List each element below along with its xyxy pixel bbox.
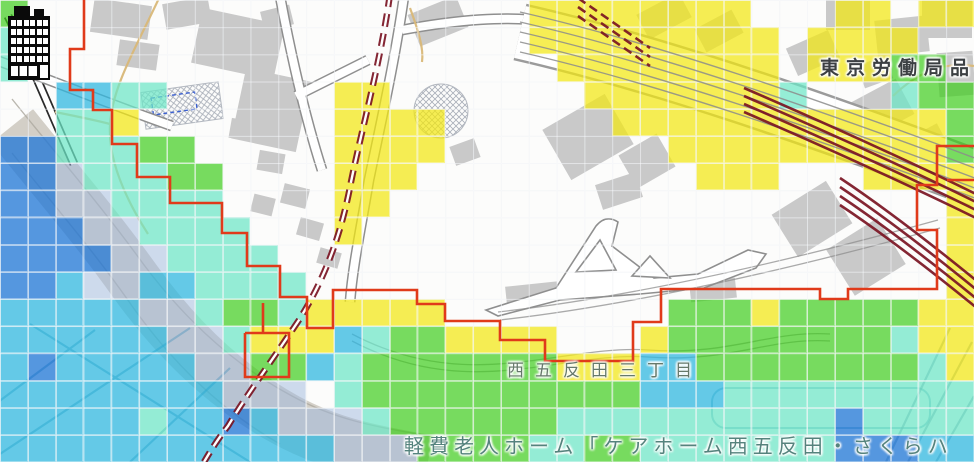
flood-cell [28, 353, 56, 380]
flood-cell [529, 27, 557, 54]
flood-cell [56, 326, 84, 353]
flood-cell [83, 245, 111, 272]
flood-cell [334, 82, 362, 109]
flood-cell [779, 136, 807, 163]
flood-cell [696, 54, 724, 81]
flood-cell [83, 217, 111, 244]
flood-cell [473, 353, 501, 380]
flood-cell [445, 326, 473, 353]
flood-cell [362, 109, 390, 136]
flood-cell [751, 109, 779, 136]
flood-cell [195, 272, 223, 299]
flood-cell [473, 326, 501, 353]
flood-cell [724, 82, 752, 109]
flood-cell [139, 163, 167, 190]
flood-cell [863, 27, 891, 54]
flood-cell [195, 217, 223, 244]
flood-cell [111, 217, 139, 244]
flood-cell [946, 0, 974, 27]
flood-cell [334, 217, 362, 244]
flood-cell [751, 299, 779, 326]
flood-cell [390, 326, 418, 353]
flood-cell [724, 381, 752, 408]
flood-cell [612, 0, 640, 27]
flood-cell [111, 109, 139, 136]
flood-cell [417, 109, 445, 136]
flood-cell [139, 272, 167, 299]
flood-cell [918, 163, 946, 190]
flood-cell [56, 82, 84, 109]
flood-cell [417, 353, 445, 380]
flood-cell [696, 82, 724, 109]
flood-cell [612, 27, 640, 54]
flood-cell [250, 245, 278, 272]
flood-cell [223, 326, 251, 353]
flood-cell [250, 299, 278, 326]
flood-cell [167, 353, 195, 380]
flood-cell [390, 381, 418, 408]
flood-cell [668, 27, 696, 54]
flood-cell [835, 353, 863, 380]
flood-cell [918, 82, 946, 109]
flood-cell [390, 299, 418, 326]
flood-cell [56, 353, 84, 380]
flood-cell [223, 381, 251, 408]
flood-cell [362, 326, 390, 353]
flood-cell [111, 408, 139, 435]
flood-cell [863, 163, 891, 190]
flood-cell [807, 353, 835, 380]
flood-cell [946, 245, 974, 272]
flood-cell [612, 82, 640, 109]
flood-cell [891, 163, 919, 190]
flood-cell [696, 0, 724, 27]
map-canvas[interactable]: 東京労働局品 西五反田三丁目 軽費老人ホーム「ケアホーム西五反田・さくらハ [0, 0, 974, 462]
flood-cell [891, 27, 919, 54]
flood-cell [278, 353, 306, 380]
flood-cell [278, 435, 306, 462]
flood-cell [918, 326, 946, 353]
flood-cell [946, 299, 974, 326]
flood-cell [83, 272, 111, 299]
flood-cell [696, 27, 724, 54]
flood-cell [111, 82, 139, 109]
flood-cell [306, 408, 334, 435]
flood-cell [0, 381, 28, 408]
flood-cell [779, 299, 807, 326]
flood-cell [56, 109, 84, 136]
flood-cell [83, 381, 111, 408]
flood-cell [751, 54, 779, 81]
flood-cell [0, 217, 28, 244]
flood-cell [56, 136, 84, 163]
flood-cell [0, 408, 28, 435]
flood-cell [111, 136, 139, 163]
flood-cell [891, 109, 919, 136]
flood-cell [111, 299, 139, 326]
flood-cell [278, 408, 306, 435]
flood-cell [612, 109, 640, 136]
flood-cell [696, 109, 724, 136]
flood-cell [557, 381, 585, 408]
flood-cell [946, 353, 974, 380]
flood-cell [56, 217, 84, 244]
flood-cell [668, 381, 696, 408]
flood-cell [390, 109, 418, 136]
flood-cell [835, 136, 863, 163]
flood-cell [557, 54, 585, 81]
flood-cell [250, 381, 278, 408]
flood-cell [779, 109, 807, 136]
flood-cell [640, 27, 668, 54]
flood-cell [362, 381, 390, 408]
flood-cell [195, 326, 223, 353]
flood-cell [779, 353, 807, 380]
flood-cell [139, 82, 167, 109]
flood-cell [56, 299, 84, 326]
flood-cell [139, 245, 167, 272]
flood-cell [807, 136, 835, 163]
flood-cell [111, 272, 139, 299]
flood-cell [0, 272, 28, 299]
flood-cell [445, 353, 473, 380]
flood-cell [28, 299, 56, 326]
flood-cell [668, 54, 696, 81]
flood-cell [334, 190, 362, 217]
flood-cell [362, 136, 390, 163]
flood-cell [362, 353, 390, 380]
flood-cell [83, 299, 111, 326]
flood-cell [56, 408, 84, 435]
flood-cell [83, 435, 111, 462]
flood-cell [167, 272, 195, 299]
flood-cell [111, 353, 139, 380]
flood-cell [724, 326, 752, 353]
flood-cell [668, 326, 696, 353]
flood-cell [668, 136, 696, 163]
flood-cell [167, 217, 195, 244]
flood-cell [139, 408, 167, 435]
flood-cell [334, 435, 362, 462]
flood-cell [139, 381, 167, 408]
flood-cell [223, 217, 251, 244]
flood-cell [28, 163, 56, 190]
flood-cell [445, 381, 473, 408]
flood-cell [724, 109, 752, 136]
flood-cell [807, 299, 835, 326]
flood-cell [28, 408, 56, 435]
flood-cell [0, 435, 28, 462]
flood-cell [306, 299, 334, 326]
flood-cell [473, 381, 501, 408]
flood-cell [167, 381, 195, 408]
flood-cell [946, 217, 974, 244]
flood-cell [139, 299, 167, 326]
flood-cell [111, 435, 139, 462]
flood-cell [223, 353, 251, 380]
flood-cell [946, 326, 974, 353]
flood-cell [696, 136, 724, 163]
flood-cell [696, 163, 724, 190]
flood-cell [167, 163, 195, 190]
flood-cell [56, 190, 84, 217]
flood-cell [751, 326, 779, 353]
label-tokyo-labor-bureau: 東京労働局品 [820, 53, 974, 80]
flood-cell [501, 326, 529, 353]
flood-cell [891, 299, 919, 326]
flood-cell [668, 0, 696, 27]
flood-cell [946, 190, 974, 217]
flood-cell [863, 353, 891, 380]
flood-cell [807, 326, 835, 353]
flood-cell [0, 245, 28, 272]
flood-cell [891, 136, 919, 163]
flood-cell [139, 136, 167, 163]
flood-cell [83, 82, 111, 109]
flood-cell [334, 163, 362, 190]
flood-cell [28, 326, 56, 353]
flood-cell [918, 109, 946, 136]
flood-cell [390, 353, 418, 380]
flood-cell [918, 299, 946, 326]
flood-cell [696, 381, 724, 408]
flood-cell [111, 245, 139, 272]
flood-cell [724, 27, 752, 54]
flood-cell [362, 190, 390, 217]
flood-cell [863, 136, 891, 163]
flood-cell [334, 353, 362, 380]
flood-cell [83, 326, 111, 353]
flood-cell [362, 408, 390, 435]
flood-cell [835, 27, 863, 54]
flood-cell [584, 82, 612, 109]
flood-cell [807, 381, 835, 408]
flood-cell [223, 299, 251, 326]
flood-cell [918, 353, 946, 380]
flood-cell [139, 217, 167, 244]
flood-cell [863, 326, 891, 353]
flood-cell [390, 136, 418, 163]
flood-cell [278, 272, 306, 299]
flood-cell [83, 109, 111, 136]
flood-cell [250, 272, 278, 299]
flood-cell [612, 381, 640, 408]
flood-cell [863, 299, 891, 326]
flood-cell [640, 54, 668, 81]
flood-cell [195, 408, 223, 435]
flood-cell [724, 136, 752, 163]
flood-cell [640, 381, 668, 408]
flood-cell [417, 381, 445, 408]
flood-cell [835, 299, 863, 326]
flood-cell [779, 326, 807, 353]
flood-cell [278, 381, 306, 408]
flood-cell [724, 54, 752, 81]
flood-cell [640, 109, 668, 136]
flood-cell [56, 381, 84, 408]
flood-cell [250, 353, 278, 380]
flood-cell [863, 381, 891, 408]
flood-cell [584, 54, 612, 81]
flood-cell [724, 299, 752, 326]
flood-cell [501, 381, 529, 408]
flood-cell [751, 82, 779, 109]
flood-cell [223, 272, 251, 299]
label-care-home-facility: 軽費老人ホーム「ケアホーム西五反田・さくらハ [404, 430, 953, 459]
flood-cell [751, 353, 779, 380]
flood-cell [28, 272, 56, 299]
flood-cell [195, 353, 223, 380]
flood-cell [56, 245, 84, 272]
flood-cell [751, 163, 779, 190]
flood-cell [334, 299, 362, 326]
flood-cell [139, 435, 167, 462]
flood-cell [584, 381, 612, 408]
flood-cell [28, 190, 56, 217]
flood-cell [807, 27, 835, 54]
flood-cell [0, 136, 28, 163]
flood-cell [891, 82, 919, 109]
flood-cell [807, 109, 835, 136]
flood-cell [250, 408, 278, 435]
flood-cell [0, 299, 28, 326]
flood-cell [167, 326, 195, 353]
flood-cell [417, 299, 445, 326]
flood-cell [390, 163, 418, 190]
flood-cell [863, 109, 891, 136]
flood-cell [779, 381, 807, 408]
flood-cell [28, 435, 56, 462]
flood-cell [28, 136, 56, 163]
flood-cell [946, 381, 974, 408]
flood-cell [891, 326, 919, 353]
flood-cell [278, 326, 306, 353]
flood-cell [111, 163, 139, 190]
flood-cell [334, 136, 362, 163]
flood-cell [529, 0, 557, 27]
flood-cell [83, 190, 111, 217]
flood-cell [584, 27, 612, 54]
flood-cell [334, 408, 362, 435]
flood-cell [111, 381, 139, 408]
flood-cell [167, 408, 195, 435]
flood-cell [891, 381, 919, 408]
flood-cell [362, 82, 390, 109]
flood-cell [195, 299, 223, 326]
flood-cell [835, 326, 863, 353]
flood-cell [0, 163, 28, 190]
flood-cell [56, 435, 84, 462]
flood-cell [28, 381, 56, 408]
flood-cell [557, 27, 585, 54]
flood-cell [56, 272, 84, 299]
flood-cell [111, 190, 139, 217]
flood-cell [362, 435, 390, 462]
flood-cell [946, 136, 974, 163]
flood-cell [417, 136, 445, 163]
flood-cell [751, 136, 779, 163]
flood-cell [195, 435, 223, 462]
flood-cell [724, 0, 752, 27]
flood-cell [918, 136, 946, 163]
flood-cell [83, 136, 111, 163]
flood-cell [28, 217, 56, 244]
flood-cell [946, 109, 974, 136]
flood-cell [640, 326, 668, 353]
flood-cell [584, 0, 612, 27]
label-nishigotanda-3chome: 西五反田三丁目 [507, 356, 703, 381]
flood-cell [362, 163, 390, 190]
flood-cell [751, 381, 779, 408]
flood-cell [167, 190, 195, 217]
flood-cell [56, 163, 84, 190]
flood-cell [946, 163, 974, 190]
flood-cell [195, 190, 223, 217]
flood-cell [83, 163, 111, 190]
flood-cell [362, 299, 390, 326]
flood-cell [918, 0, 946, 27]
flood-cell [334, 381, 362, 408]
flood-cell [612, 54, 640, 81]
flood-cell [278, 299, 306, 326]
flood-cell [167, 299, 195, 326]
flood-cell [696, 326, 724, 353]
flood-cell [83, 353, 111, 380]
flood-cell [306, 326, 334, 353]
flood-cell [696, 299, 724, 326]
flood-cell [195, 163, 223, 190]
flood-cell [835, 381, 863, 408]
flood-cell [195, 381, 223, 408]
building-marker[interactable] [0, 0, 58, 86]
flood-cell [250, 435, 278, 462]
flood-cell [111, 326, 139, 353]
flood-cell [835, 0, 863, 27]
flood-cell [139, 190, 167, 217]
flood-cell [223, 245, 251, 272]
flood-cell [724, 163, 752, 190]
flood-cell [139, 353, 167, 380]
flood-cell [167, 136, 195, 163]
flood-cell [751, 27, 779, 54]
flood-cell [668, 299, 696, 326]
flood-cell [668, 109, 696, 136]
flood-cell [334, 326, 362, 353]
flood-cell [529, 326, 557, 353]
flood-cell [863, 0, 891, 27]
flood-cell [891, 353, 919, 380]
flood-cell [640, 82, 668, 109]
flood-cell [640, 0, 668, 27]
flood-cell [250, 326, 278, 353]
flood-cell [557, 0, 585, 27]
flood-cell [946, 82, 974, 109]
flood-cell [0, 326, 28, 353]
flood-cell [334, 109, 362, 136]
flood-cell [167, 245, 195, 272]
flood-cell [779, 82, 807, 109]
flood-cell [195, 245, 223, 272]
flood-cell [167, 435, 195, 462]
flood-cell [83, 408, 111, 435]
flood-cell [946, 272, 974, 299]
flood-cell [223, 435, 251, 462]
flood-cell [0, 190, 28, 217]
flood-cell [0, 353, 28, 380]
flood-cell [724, 353, 752, 380]
flood-cell [835, 109, 863, 136]
flood-cell [918, 381, 946, 408]
